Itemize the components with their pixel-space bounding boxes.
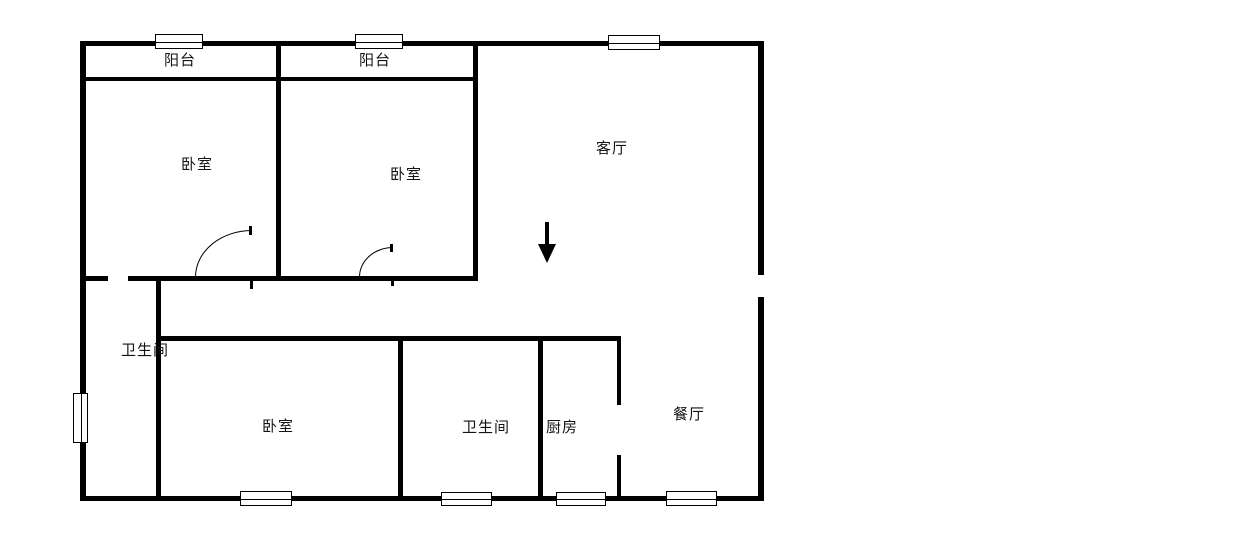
door-arc-bedroom2 (359, 247, 393, 277)
room-label-balcony-1: 阳台 (164, 53, 196, 68)
wall-bedroom3-right (398, 336, 403, 496)
room-label-living-room: 客厅 (596, 141, 628, 156)
window-pane-line (356, 42, 402, 43)
wall-kitchen-right-upper (617, 336, 621, 405)
wall-bedroom1-bedroom2 (276, 41, 281, 281)
window-pane-line (81, 394, 82, 442)
window-pane-line (667, 499, 716, 500)
room-label-kitchen: 厨房 (546, 420, 578, 435)
door-jamb-bedroom2-bottom (391, 281, 394, 286)
wall-bathroom2-right (538, 336, 543, 496)
window-kitchen-bottom (556, 492, 606, 506)
room-label-balcony-2: 阳台 (359, 53, 391, 68)
room-label-dining-room: 餐厅 (673, 407, 705, 422)
window-pane-line (442, 499, 491, 500)
window-pane-line (609, 43, 659, 44)
wall-bathroom1-right (156, 276, 161, 501)
window-pane-line (156, 42, 202, 43)
window-balcony1-top (155, 34, 203, 49)
room-label-bathroom-1: 卫生间 (121, 343, 169, 358)
window-balcony2-top (355, 34, 403, 49)
room-label-bathroom-2: 卫生间 (462, 420, 510, 435)
wall-bedrooms-bottom (128, 276, 478, 281)
door-jamb-bedroom2-top (390, 244, 393, 252)
entrance-arrow-icon (538, 244, 556, 263)
wall-outer-right-upper (758, 41, 764, 275)
window-living-top (608, 35, 660, 50)
wall-outer-right-lower (758, 297, 764, 501)
window-pane-line (557, 499, 605, 500)
wall-kitchen-right-lower (617, 455, 621, 496)
entrance-arrow-shaft (545, 222, 549, 245)
wall-bedroom2-living (473, 41, 478, 281)
room-label-bedroom-1: 卧室 (181, 157, 213, 172)
window-bathroom2-bottom (441, 492, 492, 506)
floor-plan-canvas: 阳台 阳台 卧室 卧室 客厅 卫生间 卧室 卫生间 厨房 餐厅 (0, 0, 1254, 546)
window-dining-bottom (666, 491, 717, 506)
window-left-side (73, 393, 88, 443)
room-label-bedroom-2: 卧室 (390, 167, 422, 182)
window-bedroom3-bottom (240, 491, 292, 506)
door-jamb-bedroom1-top (249, 226, 252, 235)
door-arc-bedroom1 (195, 230, 252, 277)
room-label-bedroom-3: 卧室 (262, 419, 294, 434)
wall-hall-left-stub (80, 276, 108, 281)
wall-mid-horizontal (156, 336, 620, 341)
wall-outer-bottom (80, 496, 764, 501)
door-jamb-bedroom1-bottom (250, 281, 253, 289)
window-pane-line (241, 499, 291, 500)
